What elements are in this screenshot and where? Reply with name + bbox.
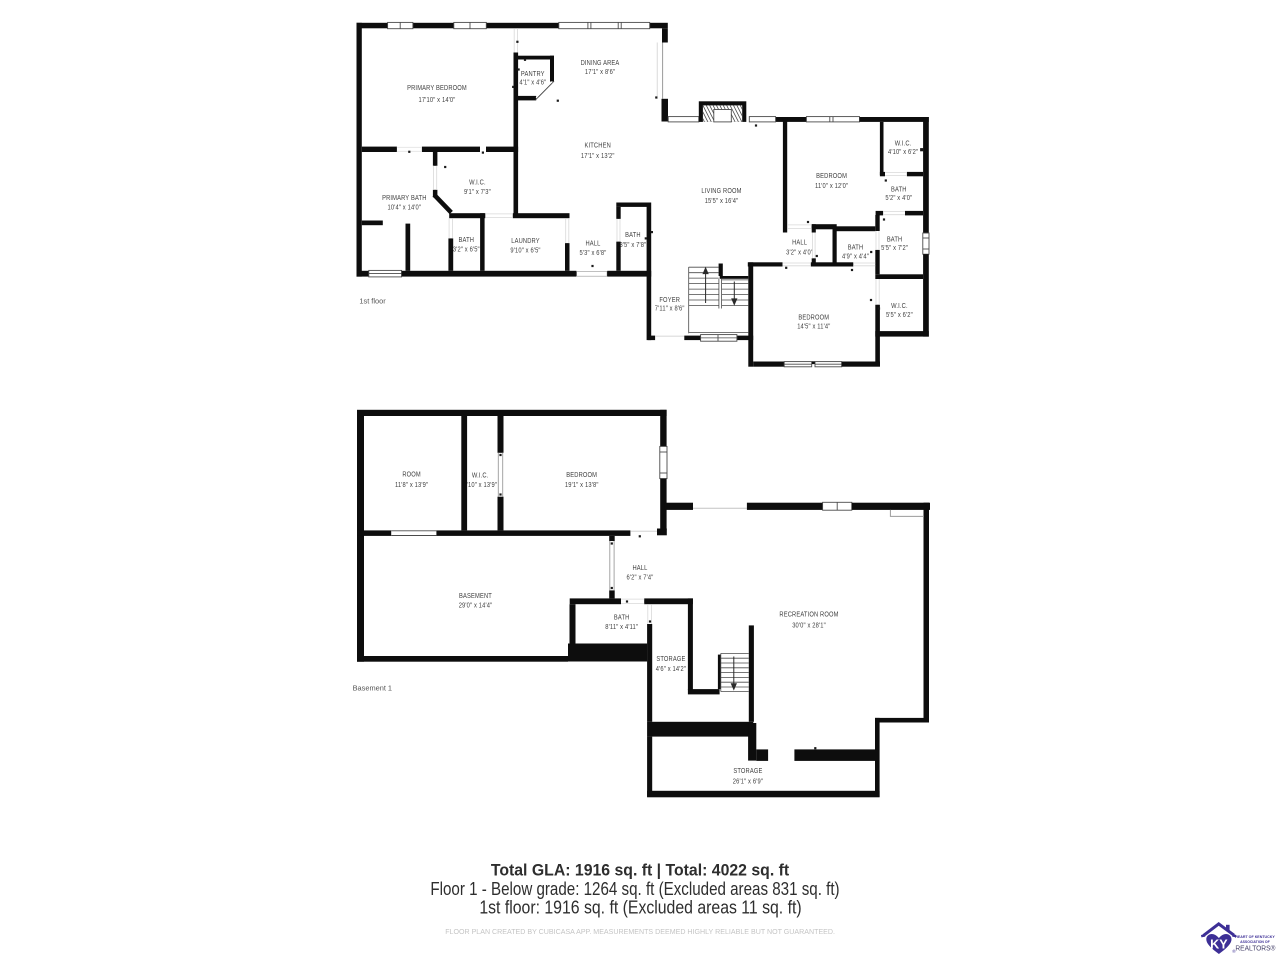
svg-text:19'1" x 13'8": 19'1" x 13'8" — [565, 481, 599, 489]
svg-text:17'1" x 13'2": 17'1" x 13'2" — [581, 152, 615, 160]
svg-text:ROOM: ROOM — [402, 471, 421, 479]
svg-text:26'1" x 6'9": 26'1" x 6'9" — [733, 778, 764, 786]
svg-text:HALL: HALL — [632, 564, 647, 572]
svg-text:PRIMARY BATH: PRIMARY BATH — [382, 194, 426, 202]
svg-text:FLOOR PLAN CREATED BY CUBICASA: FLOOR PLAN CREATED BY CUBICASA APP. MEAS… — [445, 927, 835, 936]
svg-text:6'2" x 7'4": 6'2" x 7'4" — [627, 574, 654, 582]
svg-text:4'6" x 14'2": 4'6" x 14'2" — [656, 666, 687, 674]
svg-text:11'0" x 12'0": 11'0" x 12'0" — [815, 183, 849, 191]
svg-text:4'1" x 4'6": 4'1" x 4'6" — [519, 79, 546, 87]
svg-text:5'3" x 6'8": 5'3" x 6'8" — [580, 250, 607, 258]
svg-text:BASEMENT: BASEMENT — [459, 593, 492, 601]
svg-text:8'11" x 4'11": 8'11" x 4'11" — [605, 624, 638, 632]
svg-text:LIVING ROOM: LIVING ROOM — [701, 188, 741, 196]
svg-text:REALTORS®: REALTORS® — [1235, 943, 1275, 952]
svg-text:HALL: HALL — [792, 239, 807, 247]
svg-text:3'5" x 7'8": 3'5" x 7'8" — [619, 241, 646, 249]
svg-text:FOYER: FOYER — [659, 297, 680, 305]
svg-text:30'0" x 28'1": 30'0" x 28'1" — [792, 622, 826, 630]
svg-text:14'5" x 11'4": 14'5" x 11'4" — [797, 323, 831, 331]
svg-text:5'5" x 7'2": 5'5" x 7'2" — [881, 244, 908, 252]
svg-text:9'10" x 6'5": 9'10" x 6'5" — [510, 247, 541, 255]
svg-text:1st floor: 1st floor — [359, 297, 386, 306]
svg-text:15'5" x 16'4": 15'5" x 16'4" — [705, 198, 739, 206]
svg-text:7'10" x 13'9": 7'10" x 13'9" — [463, 481, 497, 489]
svg-text:1st floor: 1916 sq. ft (Exclud: 1st floor: 1916 sq. ft (Excluded areas 1… — [479, 897, 801, 918]
svg-text:DINING AREA: DINING AREA — [581, 60, 620, 68]
svg-text:5'5" x 6'2": 5'5" x 6'2" — [886, 312, 913, 320]
svg-text:29'0" x 14'4": 29'0" x 14'4" — [459, 602, 493, 610]
svg-text:PANTRY: PANTRY — [521, 71, 545, 79]
svg-text:HALL: HALL — [585, 240, 600, 248]
svg-text:9'1" x 7'3": 9'1" x 7'3" — [464, 189, 491, 197]
svg-text:4'9" x 4'4": 4'9" x 4'4" — [842, 253, 869, 261]
svg-text:Basement 1: Basement 1 — [353, 683, 392, 692]
svg-text:BEDROOM: BEDROOM — [798, 314, 829, 322]
svg-text:KITCHEN: KITCHEN — [585, 142, 611, 150]
svg-text:BATH: BATH — [459, 237, 475, 245]
svg-text:5'2" x 4'0": 5'2" x 4'0" — [885, 194, 912, 202]
svg-text:3'2" x 4'0": 3'2" x 4'0" — [786, 249, 813, 257]
svg-text:W.I.C.: W.I.C. — [895, 140, 912, 148]
svg-text:W.I.C.: W.I.C. — [891, 302, 908, 310]
svg-text:7'11" x 8'6": 7'11" x 8'6" — [655, 305, 685, 313]
svg-text:STORAGE: STORAGE — [733, 767, 763, 775]
svg-text:4'10" x 6'2": 4'10" x 6'2" — [888, 149, 919, 157]
svg-text:BATH: BATH — [887, 236, 903, 244]
svg-text:11'8" x 13'9": 11'8" x 13'9" — [395, 481, 429, 489]
svg-text:Total GLA: 1916 sq. ft | Total: Total GLA: 1916 sq. ft | Total: 4022 sq.… — [491, 862, 790, 880]
svg-text:LAUNDRY: LAUNDRY — [511, 238, 540, 246]
svg-text:BEDROOM: BEDROOM — [566, 471, 597, 479]
svg-text:W.I.C.: W.I.C. — [469, 179, 486, 187]
svg-text:BATH: BATH — [614, 614, 630, 622]
svg-text:10'4" x 14'0": 10'4" x 14'0" — [387, 204, 421, 212]
svg-text:3'2" x 6'5": 3'2" x 6'5" — [453, 246, 480, 254]
svg-text:KY: KY — [1210, 936, 1228, 951]
svg-text:BEDROOM: BEDROOM — [816, 173, 847, 181]
svg-text:RECREATION ROOM: RECREATION ROOM — [779, 611, 838, 619]
svg-text:BATH: BATH — [891, 186, 907, 194]
svg-text:STORAGE: STORAGE — [656, 655, 686, 663]
svg-text:17'1" x 8'6": 17'1" x 8'6" — [585, 69, 616, 77]
svg-text:BATH: BATH — [848, 244, 864, 252]
svg-text:HEART OF KENTUCKY: HEART OF KENTUCKY — [1235, 935, 1275, 939]
svg-text:17'10" x 14'0": 17'10" x 14'0" — [419, 97, 456, 105]
svg-text:PRIMARY BEDROOM: PRIMARY BEDROOM — [407, 85, 467, 93]
svg-text:BATH: BATH — [625, 231, 641, 239]
svg-text:W.I.C.: W.I.C. — [472, 472, 489, 480]
